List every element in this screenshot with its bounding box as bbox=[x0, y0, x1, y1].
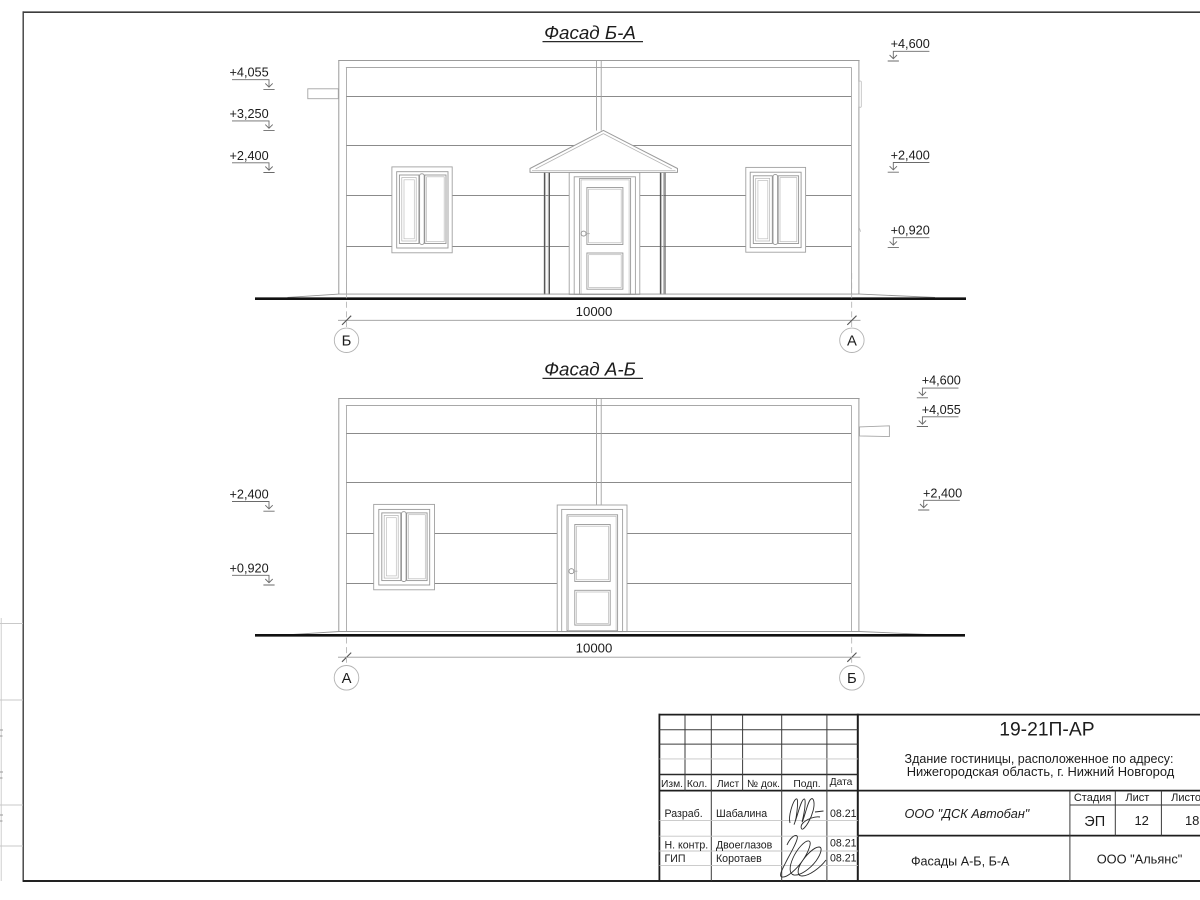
svg-text:ГИП: ГИП bbox=[665, 853, 686, 865]
svg-text:А: А bbox=[342, 671, 352, 687]
svg-text:10000: 10000 bbox=[576, 641, 613, 656]
svg-text:+2,400: +2,400 bbox=[230, 488, 269, 502]
svg-text:+4,600: +4,600 bbox=[891, 37, 930, 51]
svg-text:Фасад А-Б: Фасад А-Б bbox=[544, 358, 636, 379]
svg-text:Коротаев: Коротаев bbox=[716, 853, 762, 865]
svg-text:Н. контр.: Н. контр. bbox=[665, 839, 709, 851]
svg-text:+4,055: +4,055 bbox=[230, 66, 269, 80]
svg-text:12: 12 bbox=[1134, 813, 1148, 828]
svg-text:+2,400: +2,400 bbox=[891, 148, 930, 162]
svg-text:А: А bbox=[847, 334, 857, 350]
svg-text:Лист: Лист bbox=[717, 779, 740, 790]
svg-text:+4,600: +4,600 bbox=[922, 374, 961, 388]
svg-text:Б: Б bbox=[847, 671, 857, 687]
svg-text:+0,920: +0,920 bbox=[891, 224, 930, 238]
svg-text:ЭП: ЭП bbox=[1084, 814, 1105, 830]
svg-text:Разраб.: Разраб. bbox=[665, 808, 703, 820]
svg-text:Листов: Листов bbox=[1171, 792, 1200, 804]
svg-text:Изм.: Изм. bbox=[661, 779, 683, 790]
svg-text:Лист: Лист bbox=[1125, 792, 1149, 804]
svg-text:+2,400: +2,400 bbox=[230, 149, 269, 163]
svg-text:ООО "ДСК Автобан": ООО "ДСК Автобан" bbox=[904, 807, 1029, 821]
svg-text:ООО "Альянс": ООО "Альянс" bbox=[1097, 852, 1183, 867]
svg-text:08.21: 08.21 bbox=[830, 838, 857, 850]
svg-text:+2,400: +2,400 bbox=[923, 486, 962, 500]
svg-text:+4,055: +4,055 bbox=[922, 403, 961, 417]
svg-text:Кол.: Кол. bbox=[687, 779, 707, 790]
svg-text:Нижегородская область, г. Нижн: Нижегородская область, г. Нижний Новгоро… bbox=[907, 764, 1175, 779]
svg-text:10000: 10000 bbox=[576, 304, 613, 319]
svg-text:Стадия: Стадия bbox=[1074, 792, 1112, 804]
svg-text:+3,250: +3,250 bbox=[230, 107, 269, 121]
svg-text:Дата: Дата bbox=[830, 777, 853, 788]
svg-text:Подп.: Подп. bbox=[793, 779, 820, 790]
svg-text:Двоеглазов: Двоеглазов bbox=[716, 839, 773, 851]
svg-text:19-21П-АР: 19-21П-АР bbox=[999, 720, 1094, 741]
svg-text:Б: Б bbox=[342, 334, 352, 350]
svg-text:№ док.: № док. bbox=[747, 779, 780, 790]
svg-text:Шабалина: Шабалина bbox=[716, 808, 767, 820]
svg-text:08.21: 08.21 bbox=[830, 808, 857, 820]
svg-text:Фасад Б-А: Фасад Б-А bbox=[544, 22, 636, 43]
svg-text:+0,920: +0,920 bbox=[230, 561, 269, 575]
svg-text:18: 18 bbox=[1185, 813, 1199, 828]
svg-text:Фасады А-Б, Б-А: Фасады А-Б, Б-А bbox=[911, 855, 1010, 869]
svg-text:08.21: 08.21 bbox=[830, 853, 857, 865]
